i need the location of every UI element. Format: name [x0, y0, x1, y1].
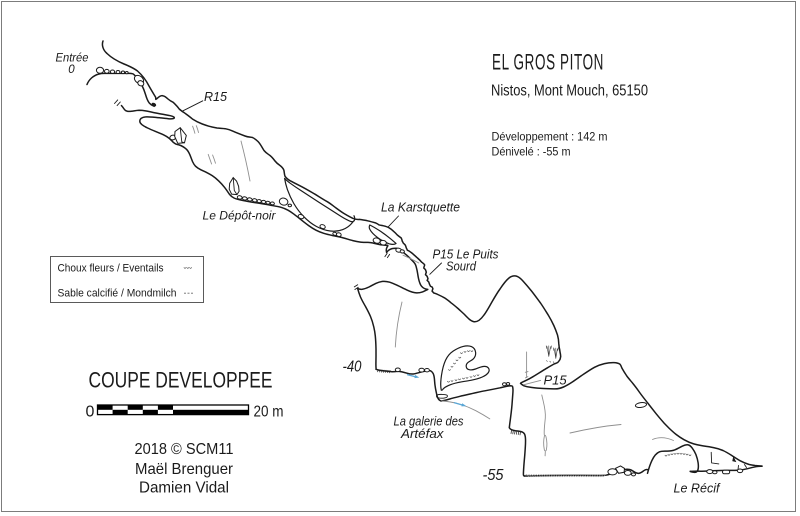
svg-text:Choux fleurs / Eventails: Choux fleurs / Eventails: [58, 263, 164, 275]
svg-text:P15: P15: [544, 373, 568, 388]
svg-text:Le Récif: Le Récif: [674, 482, 722, 496]
svg-text:0: 0: [68, 64, 75, 76]
svg-text:Entrée: Entrée: [56, 53, 89, 65]
svg-text:Dénivelé : -55 m: Dénivelé : -55 m: [492, 145, 571, 159]
svg-text:Sourd: Sourd: [446, 260, 477, 274]
svg-text:Sable calcifié / Mondmilch: Sable calcifié / Mondmilch: [58, 288, 177, 300]
svg-text:20 m: 20 m: [254, 404, 284, 421]
svg-text:Le Dépôt-noir: Le Dépôt-noir: [203, 209, 277, 223]
svg-text:Développement : 142 m: Développement : 142 m: [492, 130, 608, 144]
svg-text:R15: R15: [204, 90, 227, 104]
svg-text:Nistos, Mont Mouch, 65150: Nistos, Mont Mouch, 65150: [491, 83, 648, 100]
svg-text:Artéfax: Artéfax: [400, 427, 444, 441]
svg-text:Damien Vidal: Damien Vidal: [139, 480, 229, 497]
svg-text:-55: -55: [483, 467, 504, 484]
svg-text:Maël Brenguer: Maël Brenguer: [135, 461, 234, 478]
svg-text:La Karstquette: La Karstquette: [381, 201, 460, 215]
svg-text:2018 © SCM11: 2018 © SCM11: [135, 441, 234, 458]
svg-text:COUPE DEVELOPPEE: COUPE DEVELOPPEE: [89, 368, 273, 393]
svg-text:EL GROS PITON: EL GROS PITON: [492, 50, 604, 75]
svg-text:0: 0: [86, 404, 95, 421]
svg-text:-40: -40: [343, 359, 362, 376]
